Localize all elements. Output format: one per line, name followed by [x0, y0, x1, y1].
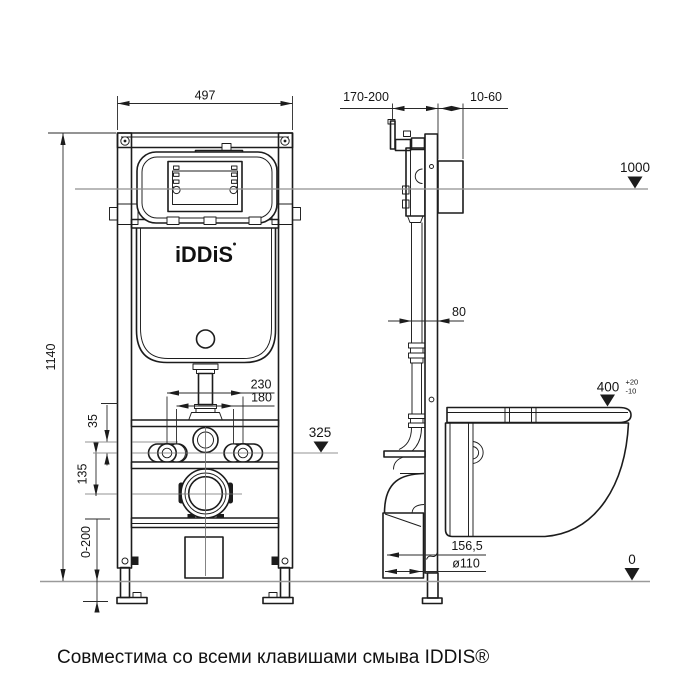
push-rod-port: [197, 330, 215, 348]
dim-156-5-label: 156,5: [451, 539, 482, 553]
support-bracket: [384, 451, 425, 457]
dim-stud-230: 230: [167, 378, 275, 444]
dim-35-label: 35: [86, 414, 100, 428]
flush-pipe: [189, 364, 223, 421]
seat-rim: [447, 408, 631, 423]
level-marker-400: 400 +20 -10: [597, 378, 639, 407]
front-top-rail: [118, 133, 293, 148]
dim-height-1140: 1140: [44, 133, 116, 581]
dim-offset-135: 135: [76, 443, 99, 497]
level-marker-325: 325: [309, 425, 332, 453]
toilet-bowl: [446, 408, 632, 537]
side-view: [383, 120, 631, 604]
front-view: iDDiS: [110, 133, 301, 604]
flush-rod-hole-right: [230, 186, 237, 193]
cross-bar-mid2: [132, 462, 279, 469]
level-400-tol-plus: +20: [626, 378, 639, 387]
drain-elbow: [383, 474, 424, 579]
side-leg: [428, 573, 439, 598]
cross-bar-mid1: [132, 420, 279, 427]
side-foot: [423, 598, 443, 604]
level-1000-label: 1000: [620, 160, 650, 175]
trademark-dot: [233, 243, 236, 246]
brand-logo: iDDiS: [175, 242, 233, 267]
dim-offset-35: 35: [86, 404, 118, 466]
installation-frame-drawing: iDDiS: [0, 0, 700, 700]
front-right-rail: [279, 133, 293, 568]
dim-170-200-label: 170-200: [343, 90, 389, 104]
flush-rod-hole-left: [173, 186, 180, 193]
flush-plate-window: [137, 144, 277, 225]
dim-0-200-label: 0-200: [79, 526, 93, 558]
dim-135-label: 135: [76, 464, 90, 485]
dim-leg-0-200: 0-200: [79, 519, 110, 613]
level-marker-1000: 1000: [620, 160, 650, 189]
technical-drawing: iDDiS: [0, 0, 700, 700]
cross-bar-bottom: [132, 518, 279, 528]
level-marker-0: 0: [625, 552, 640, 581]
dim-80-label: 80: [452, 305, 466, 319]
panel-plate: [438, 161, 463, 213]
dim-stud-180: 180: [177, 391, 275, 444]
drain-template-box: [185, 537, 223, 578]
dim-1140-label: 1140: [44, 344, 58, 371]
side-clip-left: [110, 204, 139, 225]
level-400-label: 400: [597, 380, 620, 395]
level-0-label: 0: [628, 552, 636, 567]
level-325-label: 325: [309, 425, 332, 440]
dim-10-60-label: 10-60: [470, 90, 502, 104]
inlet-valve: [388, 120, 425, 151]
level-400-tol-minus: -10: [626, 387, 637, 396]
dim-width-497: 497: [118, 89, 293, 131]
dim-o110-label: ø110: [452, 557, 480, 571]
dim-230-label: 230: [251, 378, 272, 392]
dim-497-label: 497: [195, 89, 216, 103]
front-left-rail: [118, 133, 132, 568]
cistern-profile: [403, 148, 426, 223]
foot-plate-right: [263, 598, 293, 604]
dim-180-label: 180: [251, 391, 272, 405]
side-rail: [425, 134, 438, 573]
flush-pipe-profile: [394, 223, 426, 470]
foot-plate-left: [117, 598, 147, 604]
compatibility-caption: Совместима со всеми клавишами смыва IDDI…: [57, 647, 489, 668]
adjustable-legs: [117, 557, 293, 604]
